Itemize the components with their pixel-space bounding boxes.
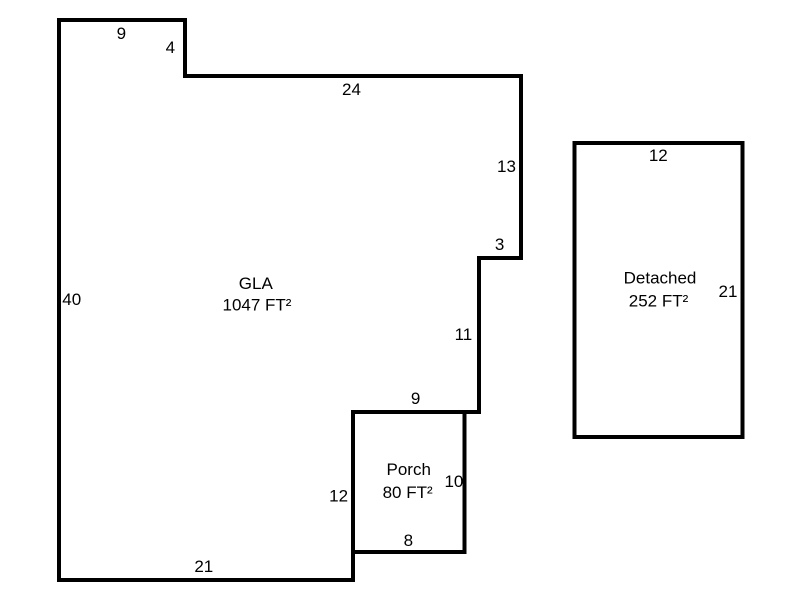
svg-text:80 FT²: 80 FT² xyxy=(383,483,433,502)
svg-text:12: 12 xyxy=(329,486,348,505)
svg-text:40: 40 xyxy=(62,290,81,309)
svg-text:9: 9 xyxy=(411,389,420,408)
svg-text:11: 11 xyxy=(455,325,473,344)
svg-text:Porch: Porch xyxy=(386,460,430,479)
svg-text:3: 3 xyxy=(495,235,504,254)
svg-text:4: 4 xyxy=(166,38,175,57)
svg-text:1047 FT²: 1047 FT² xyxy=(223,296,292,315)
svg-text:13: 13 xyxy=(497,157,516,176)
svg-text:24: 24 xyxy=(342,80,361,99)
svg-text:252 FT²: 252 FT² xyxy=(629,292,689,311)
svg-text:8: 8 xyxy=(404,531,413,550)
svg-text:12: 12 xyxy=(649,146,668,165)
svg-text:9: 9 xyxy=(117,24,126,43)
svg-text:21: 21 xyxy=(719,282,738,301)
svg-text:21: 21 xyxy=(194,557,213,576)
svg-text:10: 10 xyxy=(444,472,463,491)
svg-text:GLA: GLA xyxy=(239,274,274,293)
svg-text:Detached: Detached xyxy=(624,268,697,287)
